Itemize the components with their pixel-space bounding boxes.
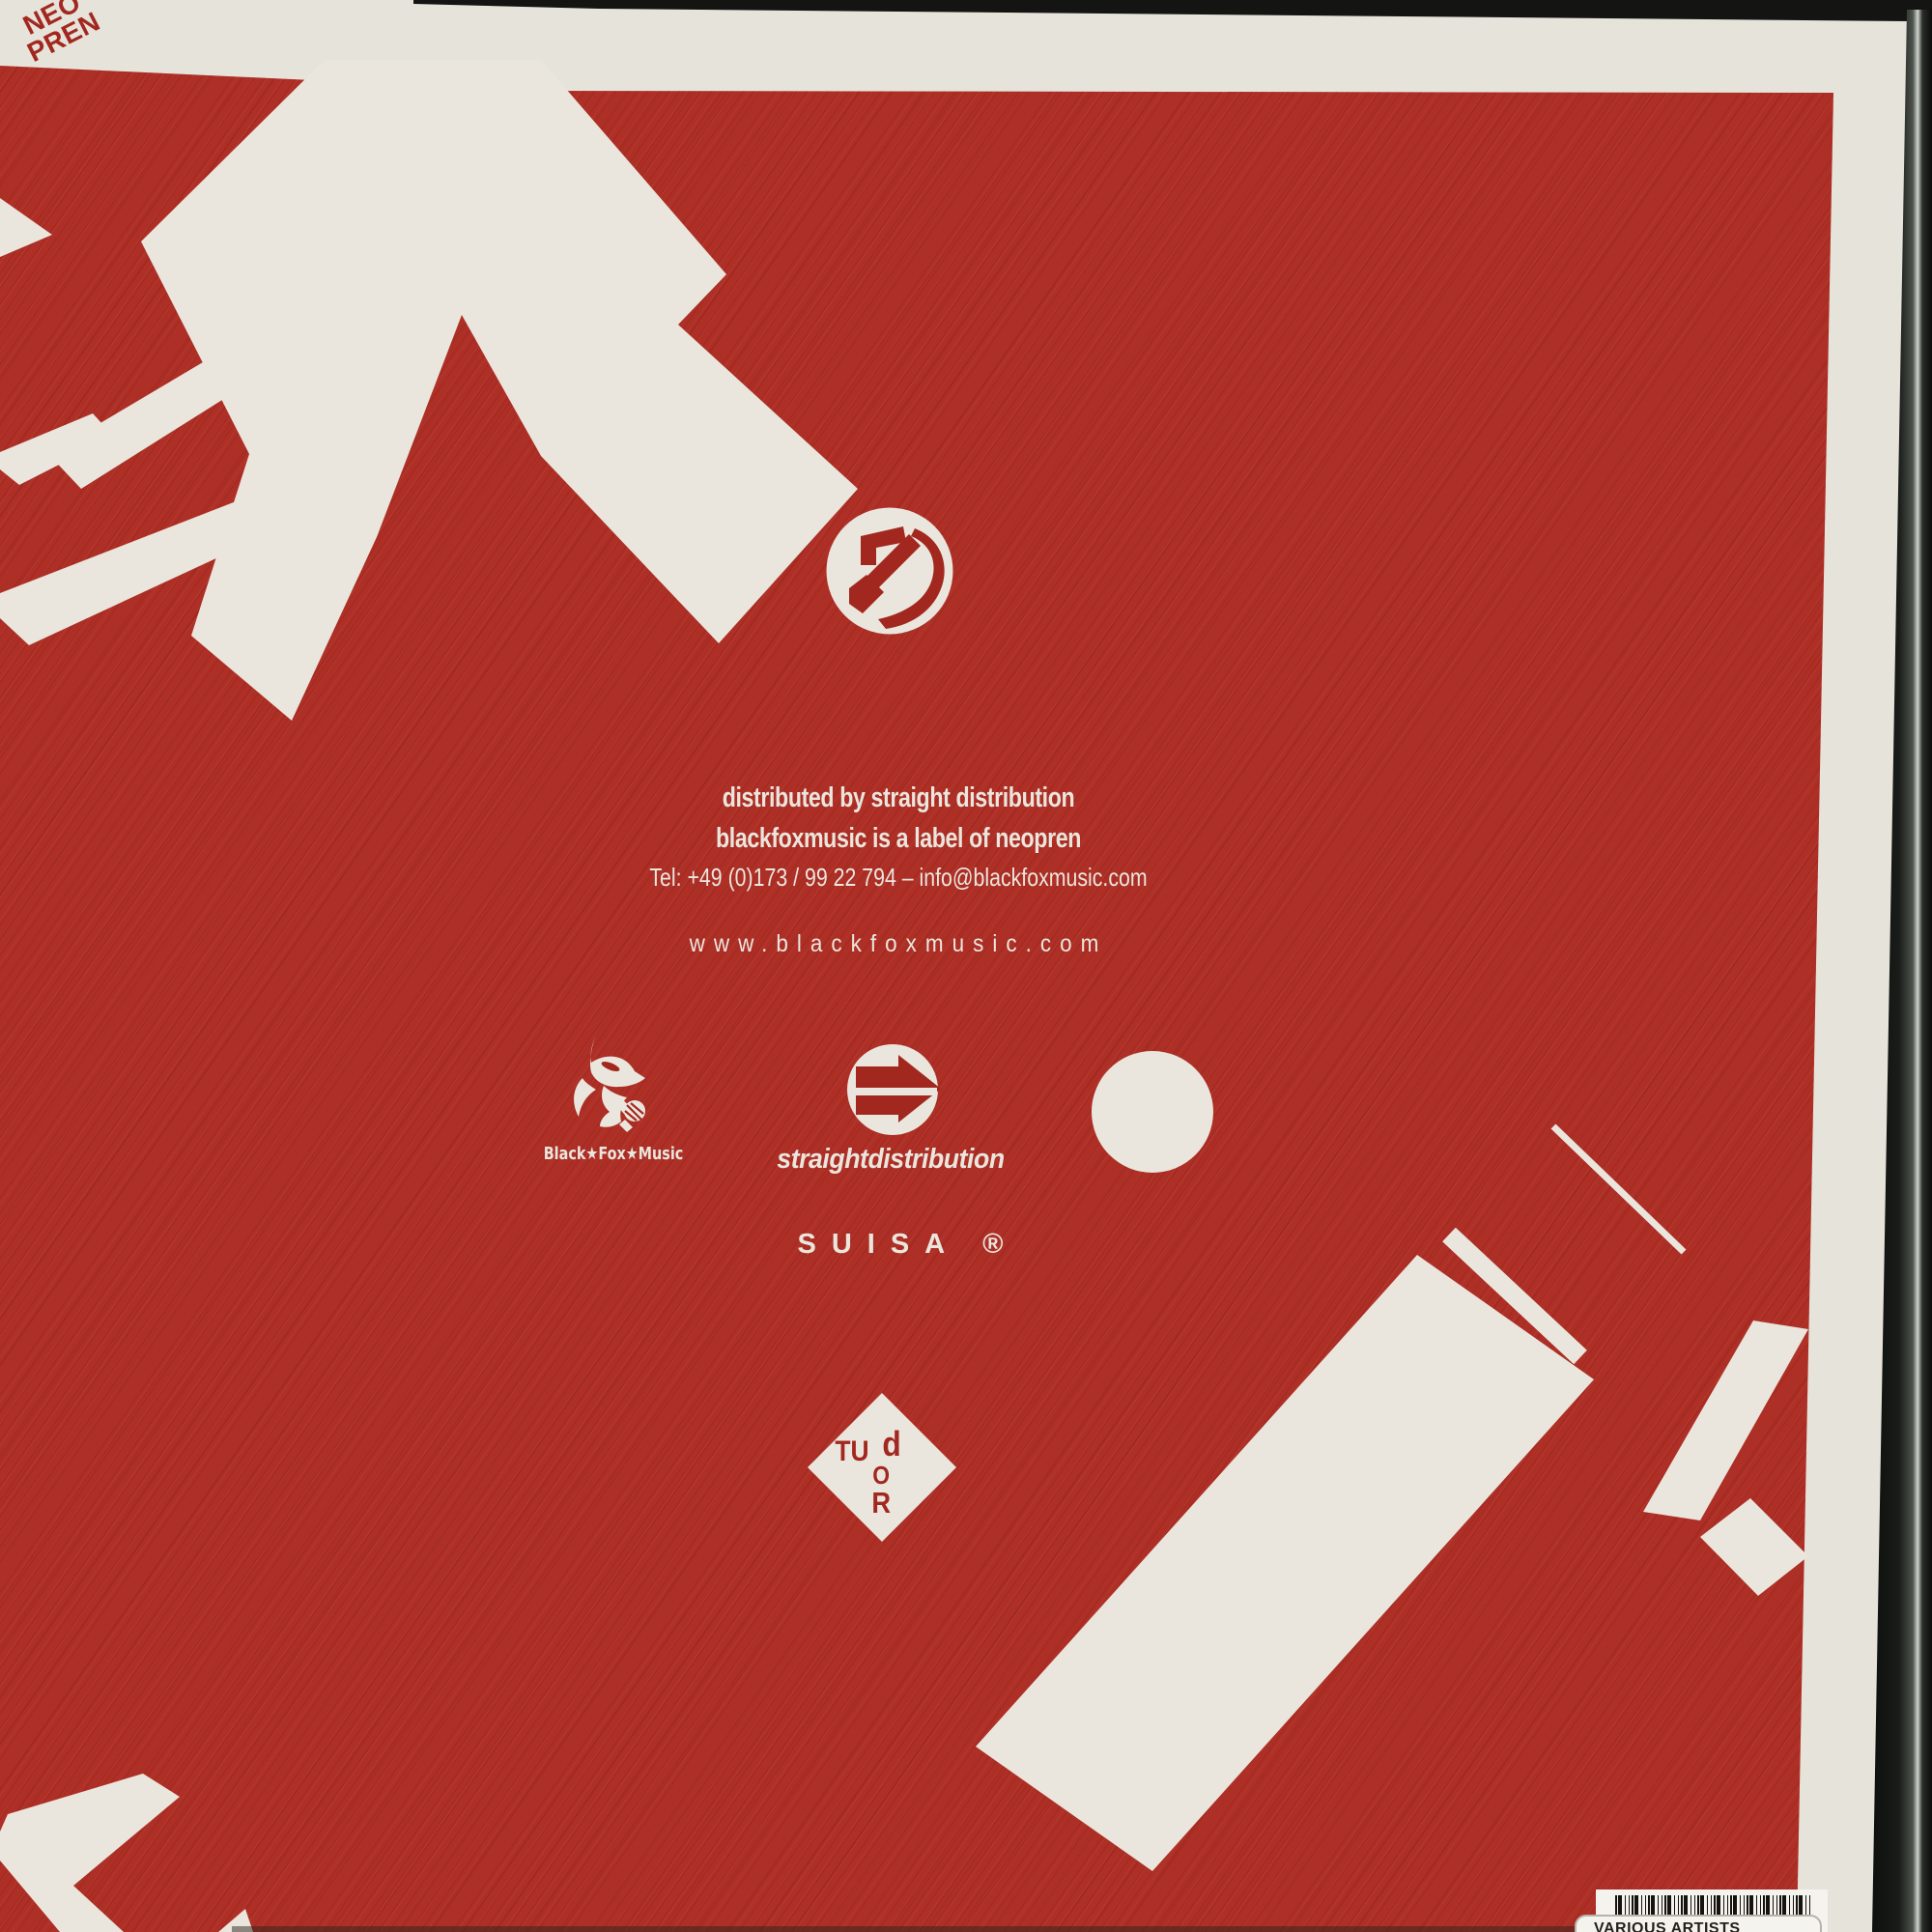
tudor-letters-tu: TU — [835, 1435, 868, 1468]
abstract-artwork-layer — [0, 0, 1932, 1932]
tudor-letter-r: R — [871, 1486, 891, 1520]
record-sleeve-back-scan: distributed by straight distribution bla… — [0, 0, 1932, 1932]
tudor-letter-d: d — [882, 1424, 900, 1464]
right-diagonal-leg — [1700, 1498, 1808, 1596]
black-fox-music-label: Black★Fox★Music — [536, 1144, 691, 1164]
suisa-rights-label: SUISA ® — [319, 1229, 1497, 1261]
frame-right-edge — [1872, 10, 1932, 1932]
website-url: www.blackfoxmusic.com — [377, 930, 1420, 958]
neopren-badge-circle — [1092, 1051, 1213, 1173]
big-diagonal-bar — [976, 1255, 1594, 1871]
label-line: blackfoxmusic is a label of neopren — [435, 823, 1362, 855]
barcode — [1615, 1895, 1810, 1917]
artist-name-label: VARIOUS ARTISTS — [1575, 1915, 1822, 1932]
right-diagonal-band — [1643, 1321, 1808, 1520]
frame-top-edge — [413, 0, 1932, 25]
glyph-zigzag — [0, 1774, 180, 1932]
hammer-sickle-icon — [827, 508, 953, 635]
phone-email-line: Tel: +49 (0)173 / 99 22 794 – info@black… — [423, 863, 1374, 893]
sheet-bottom-shadow — [232, 1926, 1797, 1932]
distribution-line: distributed by straight distribution — [435, 782, 1362, 814]
glyph-wedge — [0, 198, 52, 257]
fox-icon — [574, 1030, 645, 1132]
thin-diagonal-line — [1553, 1126, 1684, 1252]
straight-distribution-arrow-icon — [847, 1044, 941, 1135]
glyph-sliver — [48, 344, 259, 489]
giant-glyph-shape — [141, 60, 858, 721]
straight-distribution-wordmark: straightdistribution — [713, 1144, 1068, 1176]
